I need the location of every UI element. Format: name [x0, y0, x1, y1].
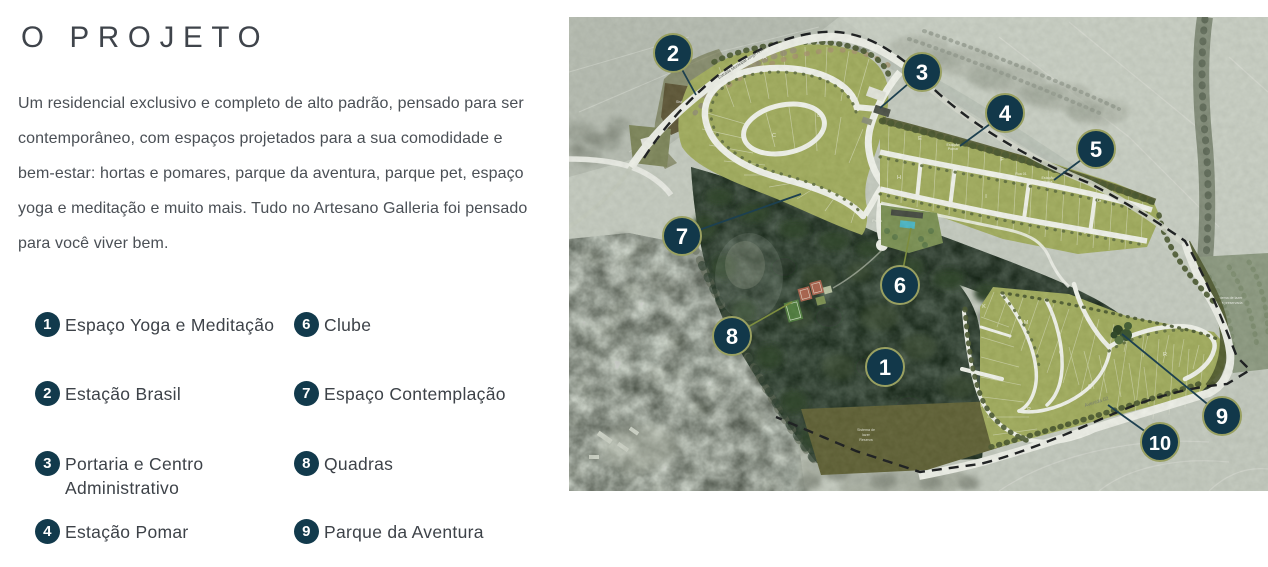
svg-text:4: 4: [999, 101, 1012, 126]
svg-text:10: 10: [1149, 433, 1171, 455]
svg-text:1: 1: [879, 355, 891, 380]
svg-text:8: 8: [726, 324, 738, 349]
svg-text:6: 6: [894, 273, 906, 298]
svg-text:5: 5: [1090, 137, 1102, 162]
svg-text:7: 7: [676, 224, 688, 249]
svg-text:2: 2: [667, 41, 679, 66]
svg-text:3: 3: [916, 60, 928, 85]
svg-text:9: 9: [1216, 404, 1228, 429]
